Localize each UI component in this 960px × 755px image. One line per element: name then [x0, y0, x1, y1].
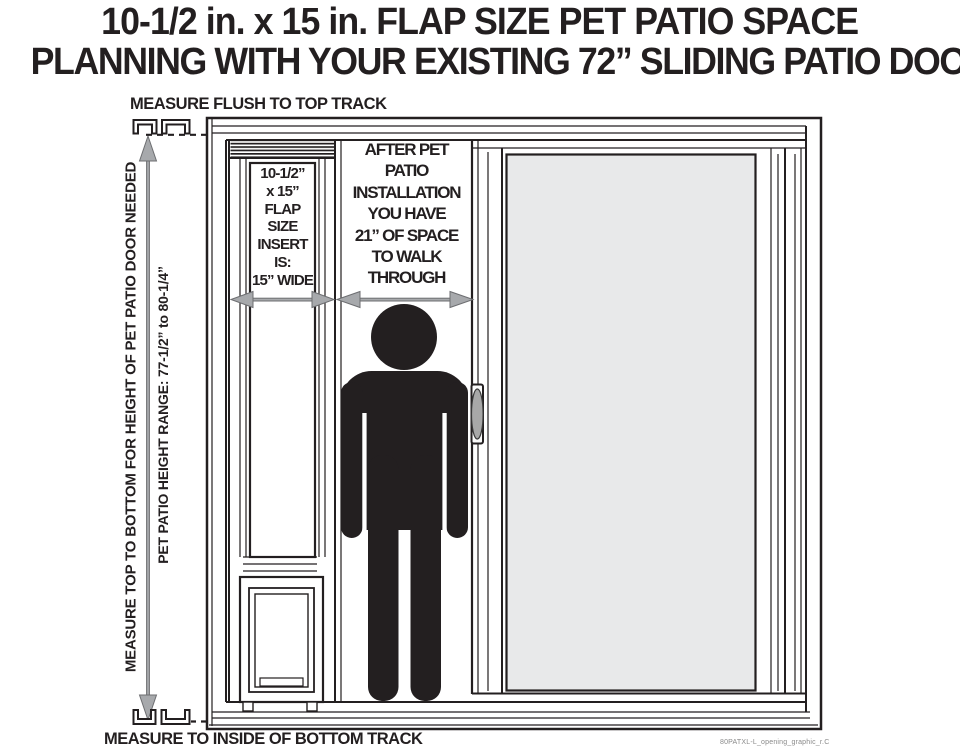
insert-size-label-line: IS:: [250, 254, 315, 272]
walkthrough-label-line: INSTALLATION: [341, 182, 472, 203]
walkthrough-label-line: YOU HAVE: [341, 203, 472, 224]
bottom-track-icon: [134, 710, 190, 724]
insert-size-label-line: SIZE: [250, 218, 315, 236]
insert-size-label: 10-1/2” x 15” FLAP SIZE INSERT IS: 15” W…: [250, 165, 315, 290]
insert-size-label-line: x 15”: [250, 183, 315, 201]
walkthrough-label-line: THROUGH: [341, 267, 472, 288]
walkthrough-label-line: AFTER PET: [341, 139, 472, 160]
pet-patio-planning-diagram: 10-1/2 in. x 15 in. FLAP SIZE PET PATIO …: [0, 0, 960, 755]
insert-size-label-line: INSERT: [250, 236, 315, 254]
walkthrough-space-label: AFTER PET PATIO INSTALLATION YOU HAVE 21…: [341, 139, 472, 289]
walkthrough-label-line: 21” OF SPACE: [341, 225, 472, 246]
height-measure-arrow: [140, 136, 157, 720]
door-handle: [472, 385, 484, 444]
insert-size-label-line: 10-1/2”: [250, 165, 315, 183]
height-range-label: PET PATIO HEIGHT RANGE: 77-1/2” to 80-1/…: [155, 266, 171, 564]
walkthrough-label-line: PATIO: [341, 160, 472, 181]
insert-hatched-header: [231, 141, 335, 157]
insert-size-label-line: 15” WIDE: [250, 272, 315, 290]
measure-top-track-label: MEASURE FLUSH TO TOP TRACK: [130, 95, 387, 114]
measure-bottom-track-label: MEASURE TO INSIDE OF BOTTOM TRACK: [104, 730, 422, 749]
person-figure: [341, 304, 468, 701]
top-track-icon: [134, 120, 190, 134]
insert-size-label-line: FLAP: [250, 201, 315, 219]
graphic-id-watermark: 80PATXL-L_opening_graphic_r.C: [720, 739, 829, 746]
sliding-door-panel: [472, 140, 807, 694]
pet-flap-door: [240, 577, 323, 711]
glass-pane: [507, 155, 756, 691]
height-measure-label: MEASURE TOP TO BOTTOM FOR HEIGHT OF PET …: [122, 162, 139, 672]
walkthrough-label-line: TO WALK: [341, 246, 472, 267]
